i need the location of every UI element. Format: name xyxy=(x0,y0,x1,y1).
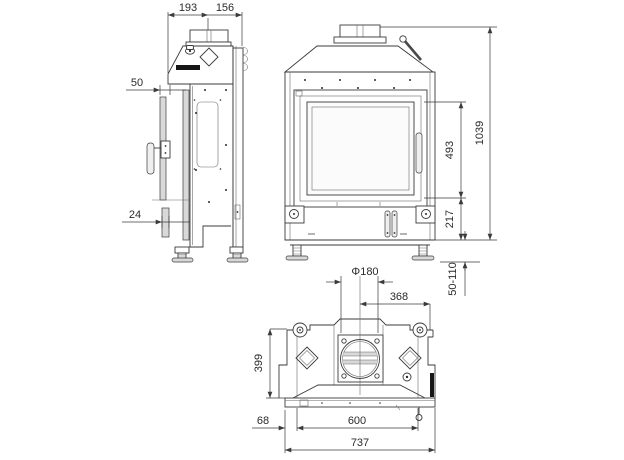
front-glass xyxy=(307,102,414,195)
front-rivets xyxy=(304,79,411,89)
dim-side-bottom-offset: 24 xyxy=(129,209,141,221)
dim-top-depth: 399 xyxy=(253,354,265,372)
front-door-latch xyxy=(416,133,422,173)
dim-top-frame-width: 737 xyxy=(351,437,369,449)
side-rear-strip xyxy=(233,48,243,247)
dim-side-glass-offset: 50 xyxy=(131,77,143,89)
brand-label-band-top xyxy=(430,373,434,397)
dim-top-flue-diameter: Φ180 xyxy=(351,266,378,278)
side-door-handle xyxy=(147,143,154,174)
front-ash-handle xyxy=(308,211,407,237)
side-panel-outline xyxy=(197,102,218,167)
dim-side-depth-rear: 156 xyxy=(216,2,234,14)
dim-front-feet-range: 50-110 xyxy=(447,262,459,295)
side-door-frame xyxy=(183,90,189,240)
side-feet xyxy=(172,247,248,262)
drawing-canvas: 193 156 50 24 xyxy=(0,0,624,460)
top-view: Φ180 368 399 68 600 737 xyxy=(252,266,435,453)
top-flue-plate xyxy=(338,335,383,382)
dim-front-glass-height: 493 xyxy=(444,141,456,159)
side-door-lower-edge xyxy=(162,208,169,237)
side-view: 193 156 50 24 xyxy=(122,2,248,262)
side-rivets xyxy=(195,89,227,203)
front-flue-pipe xyxy=(340,25,380,37)
technical-drawing-svg: 193 156 50 24 xyxy=(0,0,624,460)
side-flue-collar xyxy=(190,30,228,42)
top-front-frame xyxy=(285,398,435,407)
dim-front-total-height: 1039 xyxy=(474,121,486,145)
dim-front-base-height: 217 xyxy=(444,210,456,228)
front-feet xyxy=(286,245,434,260)
dim-top-body-width: 600 xyxy=(348,415,366,427)
brand-label-band xyxy=(176,65,200,70)
side-wall-hooks xyxy=(243,47,248,71)
front-leg-plates xyxy=(285,206,435,223)
dim-top-flue-center-offset: 368 xyxy=(390,291,408,303)
front-view: 493 217 1039 50-110 xyxy=(285,25,497,296)
top-front-bevel xyxy=(293,385,425,398)
dim-top-frame-side-offset: 68 xyxy=(257,415,269,427)
dim-side-depth-front: 193 xyxy=(179,2,197,14)
